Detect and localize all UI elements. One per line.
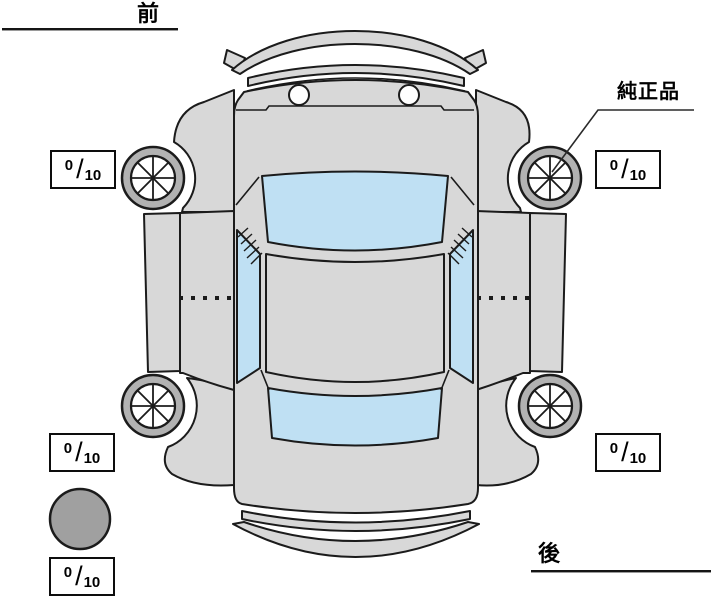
- tread-value: 0: [65, 157, 73, 174]
- fender-front-right: [476, 90, 530, 212]
- side-window-right: [450, 230, 473, 383]
- car-top-view-diagram: [0, 0, 711, 600]
- door-panel-right: [476, 211, 530, 390]
- tread-separator: /: [75, 439, 83, 466]
- tread-separator: /: [621, 156, 629, 183]
- windshield: [262, 172, 448, 251]
- rear-underline: [531, 570, 711, 573]
- tread-score-rear-right: 0/10: [595, 433, 661, 472]
- tread-max: 10: [85, 167, 102, 184]
- tire-rear-left-icon: [122, 375, 184, 437]
- tire-front-right-icon: [519, 147, 581, 209]
- roof: [266, 254, 444, 382]
- tread-max: 10: [630, 167, 647, 184]
- tread-separator: /: [621, 439, 629, 466]
- tread-max: 10: [84, 450, 101, 467]
- side-window-left: [237, 230, 260, 383]
- spare-tire-icon: [50, 489, 110, 549]
- rear-label: 後: [538, 543, 560, 565]
- fender-front-left: [174, 90, 234, 212]
- front-underline: [2, 28, 178, 31]
- tread-max: 10: [630, 450, 647, 467]
- hood-circle-left: [289, 85, 309, 105]
- tread-separator: /: [76, 156, 84, 183]
- side-sill-right: [530, 213, 566, 372]
- front-label: 前: [137, 3, 159, 25]
- tread-score-rear-left: 0/10: [49, 433, 115, 472]
- tire-front-left-icon: [122, 147, 184, 209]
- tread-value: 0: [64, 564, 72, 581]
- tread-max: 10: [84, 574, 101, 591]
- tread-score-spare: 0/10: [49, 557, 115, 596]
- trunk-edge-strip: [242, 511, 470, 531]
- hood-circle-right: [399, 85, 419, 105]
- tread-score-front-right: 0/10: [595, 150, 661, 189]
- tread-score-front-left: 0/10: [50, 150, 116, 189]
- tread-value: 0: [610, 157, 618, 174]
- door-panel-left: [180, 211, 234, 390]
- tread-value: 0: [64, 440, 72, 457]
- tread-value: 0: [610, 440, 618, 457]
- genuine-part-label: 純正品: [617, 82, 680, 102]
- tire-rear-right-icon: [519, 375, 581, 437]
- rear-window: [268, 388, 442, 446]
- tread-separator: /: [75, 563, 83, 590]
- vehicle-inspection-diagram: 前 後 純正品 0/10 0/10 0/10 0/10 0/10: [0, 0, 711, 600]
- side-sill-left: [144, 213, 180, 372]
